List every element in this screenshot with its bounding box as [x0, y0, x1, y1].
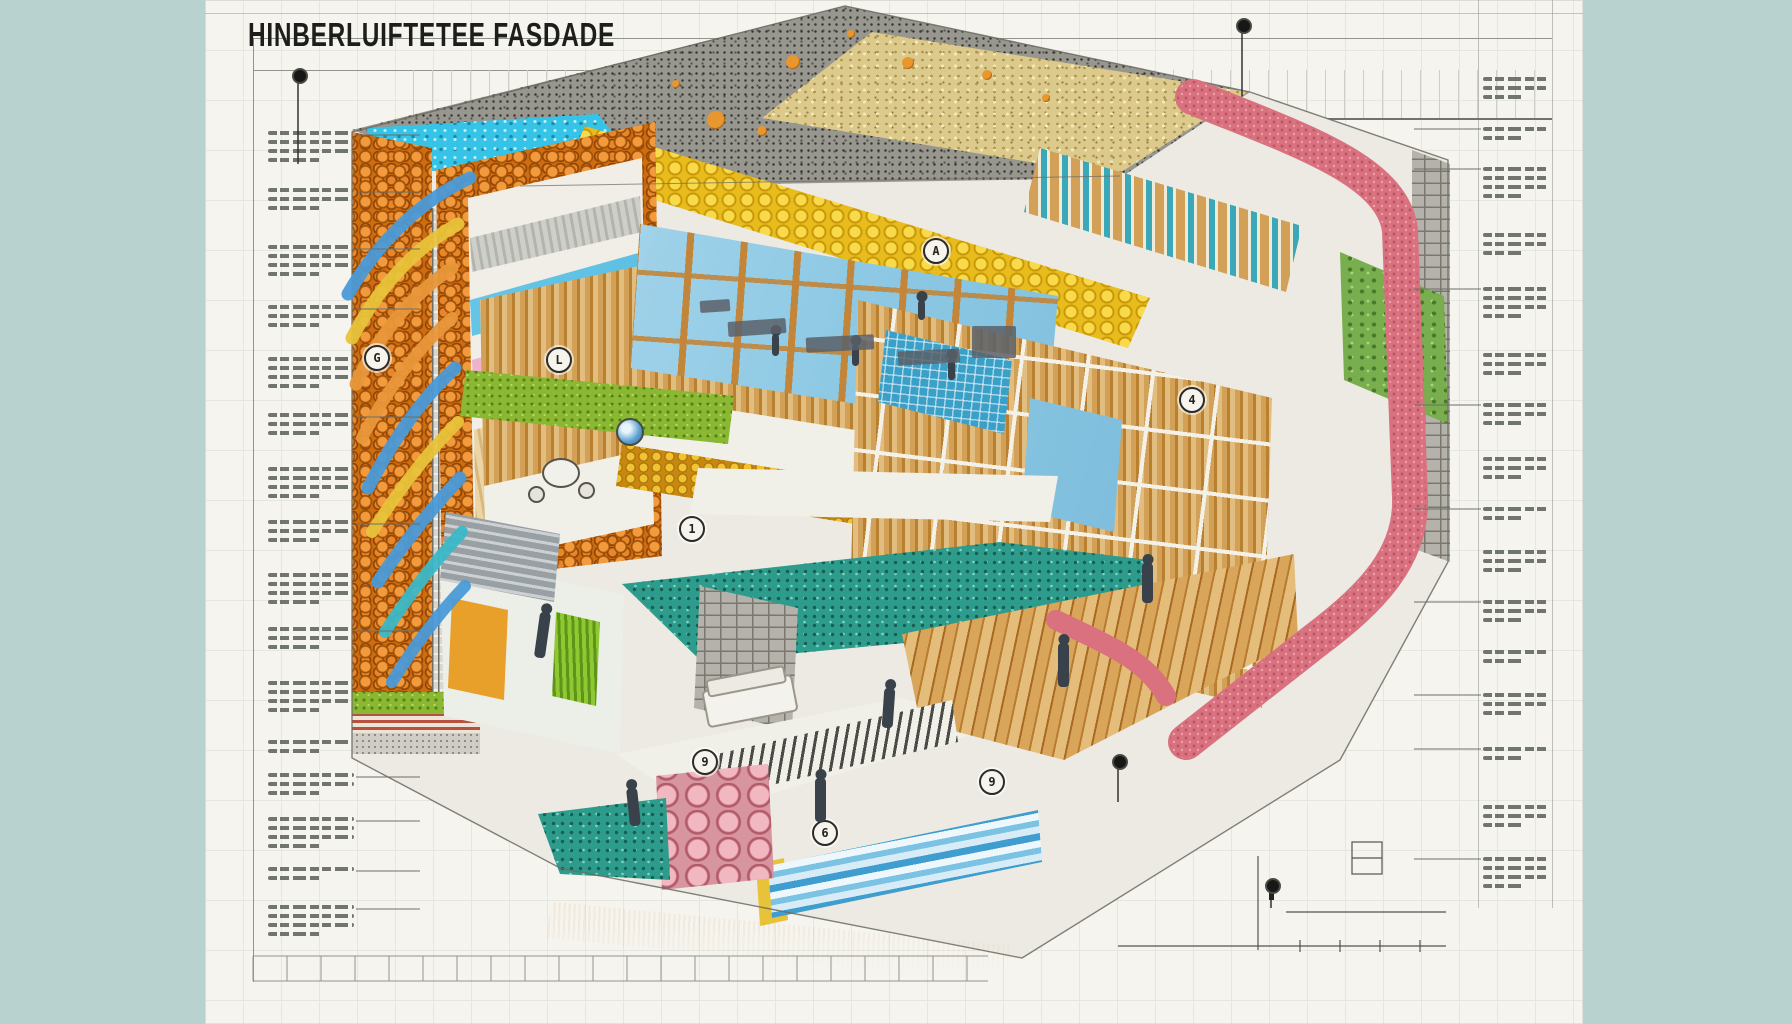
pin-stems — [298, 30, 1271, 908]
callout-marker: 9 — [979, 769, 1005, 795]
section-pin — [292, 68, 308, 84]
furniture-silhouette — [700, 299, 731, 313]
person-figure — [815, 778, 826, 822]
roof-edge-line — [520, 176, 1120, 186]
roof-gravel-dot — [902, 57, 914, 69]
leader-lines — [356, 129, 1481, 909]
callout-marker: A — [923, 238, 949, 264]
roof-gravel-dot — [707, 111, 725, 129]
roof-gravel-dot — [847, 30, 855, 38]
roof-gravel-dot — [1042, 94, 1050, 102]
round-table — [542, 458, 580, 488]
blueprint-poster: HINBERLUIFTETEE FASDADE — [0, 0, 1792, 1024]
chair — [578, 482, 595, 499]
roof-gravel-dot — [982, 70, 992, 80]
callout-marker: G — [364, 345, 390, 371]
furniture-silhouette — [972, 326, 1016, 358]
person-figure — [772, 334, 779, 356]
person-figure — [1142, 563, 1153, 603]
bottom-scale-ruler — [253, 956, 988, 981]
pink-insulation-wrap — [1056, 97, 1410, 742]
callout-marker: 6 — [812, 820, 838, 846]
chair — [528, 486, 545, 503]
section-pin — [1236, 18, 1252, 34]
roof-gravel-dot — [786, 55, 800, 69]
section-pin — [1112, 754, 1128, 770]
roof-gravel-dot — [672, 80, 680, 88]
roof-gravel-dot — [757, 126, 767, 136]
section-pin — [1265, 878, 1281, 894]
callout-marker: 9 — [692, 749, 718, 775]
person-figure — [1058, 643, 1069, 687]
callout-marker: 1 — [679, 516, 705, 542]
callout-marker: 4 — [1179, 387, 1205, 413]
peeled-layer-ribbons — [348, 178, 470, 682]
mini-detail-drawing — [1118, 842, 1446, 952]
globe — [616, 418, 644, 446]
person-figure — [918, 300, 925, 320]
linework-overlay-svg — [0, 0, 1792, 1024]
callout-marker: L — [546, 347, 572, 373]
